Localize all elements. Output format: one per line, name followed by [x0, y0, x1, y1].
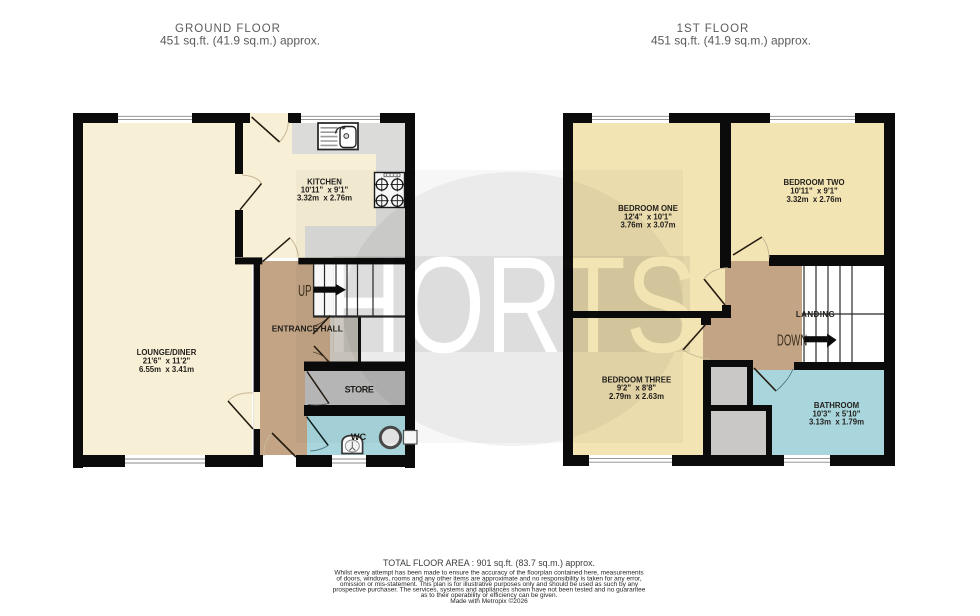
svg-text:LANDING: LANDING: [796, 310, 835, 319]
svg-text:3.13m x 1.79m: 3.13m x 1.79m: [809, 418, 864, 427]
svg-text:DOWN: DOWN: [777, 331, 807, 349]
svg-text:TOTAL FLOOR AREA : 901 sq.ft.: TOTAL FLOOR AREA : 901 sq.ft. (83.7 sq.m…: [383, 558, 595, 568]
svg-text:451 sq.ft. (41.9 sq.m.) approx: 451 sq.ft. (41.9 sq.m.) approx.: [651, 34, 811, 48]
svg-text:Made with Metropix ©2026: Made with Metropix ©2026: [450, 597, 528, 605]
svg-text:451 sq.ft. (41.9 sq.m.) approx: 451 sq.ft. (41.9 sq.m.) approx.: [160, 34, 320, 48]
svg-text:3.32m x 2.76m: 3.32m x 2.76m: [786, 195, 841, 204]
svg-text:6.55m x 3.41m: 6.55m x 3.41m: [139, 365, 194, 374]
